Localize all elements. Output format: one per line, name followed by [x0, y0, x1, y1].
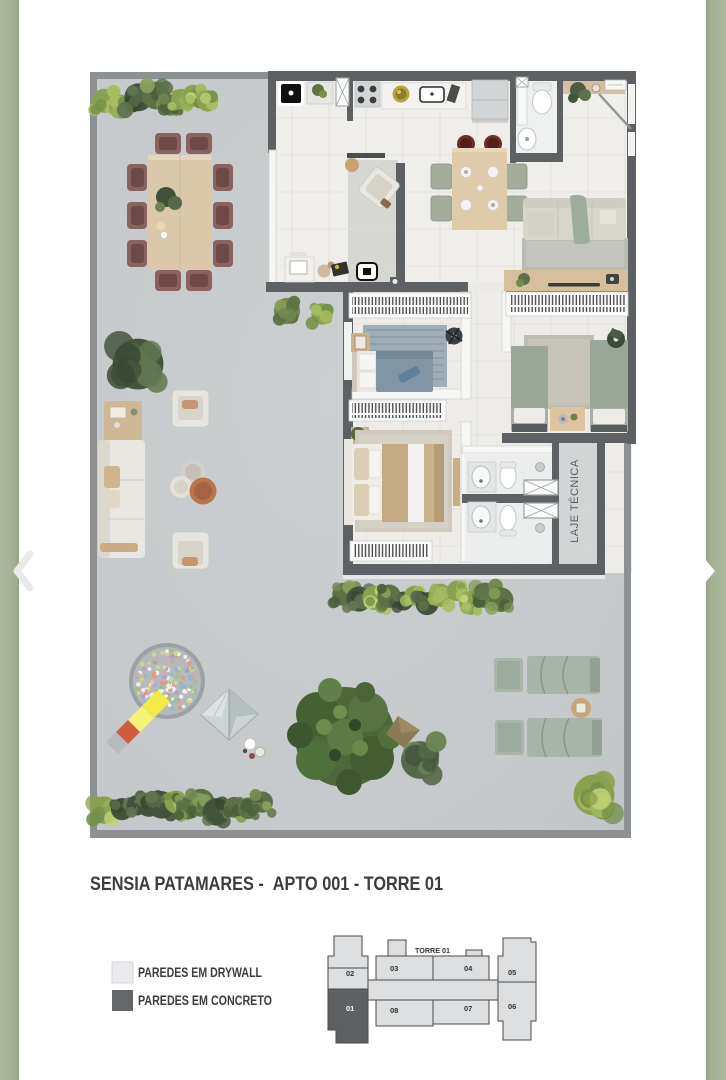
svg-text:06: 06	[508, 1002, 516, 1011]
svg-text:LAJE TÉCNICA: LAJE TÉCNICA	[568, 459, 581, 543]
svg-text:03: 03	[390, 964, 398, 973]
svg-text:TORRE 01: TORRE 01	[415, 946, 450, 955]
svg-text:08: 08	[390, 1006, 398, 1015]
svg-text:PAREDES EM CONCRETO: PAREDES EM CONCRETO	[138, 993, 272, 1008]
svg-text:SENSIA PATAMARES - APTO 001 -: SENSIA PATAMARES - APTO 001 - TORRE 01	[90, 873, 443, 895]
svg-text:07: 07	[464, 1004, 472, 1013]
svg-text:04: 04	[464, 964, 473, 973]
svg-text:01: 01	[346, 1004, 354, 1013]
svg-text:05: 05	[508, 968, 516, 977]
svg-text:PAREDES EM DRYWALL: PAREDES EM DRYWALL	[138, 965, 262, 980]
svg-text:02: 02	[346, 969, 354, 978]
